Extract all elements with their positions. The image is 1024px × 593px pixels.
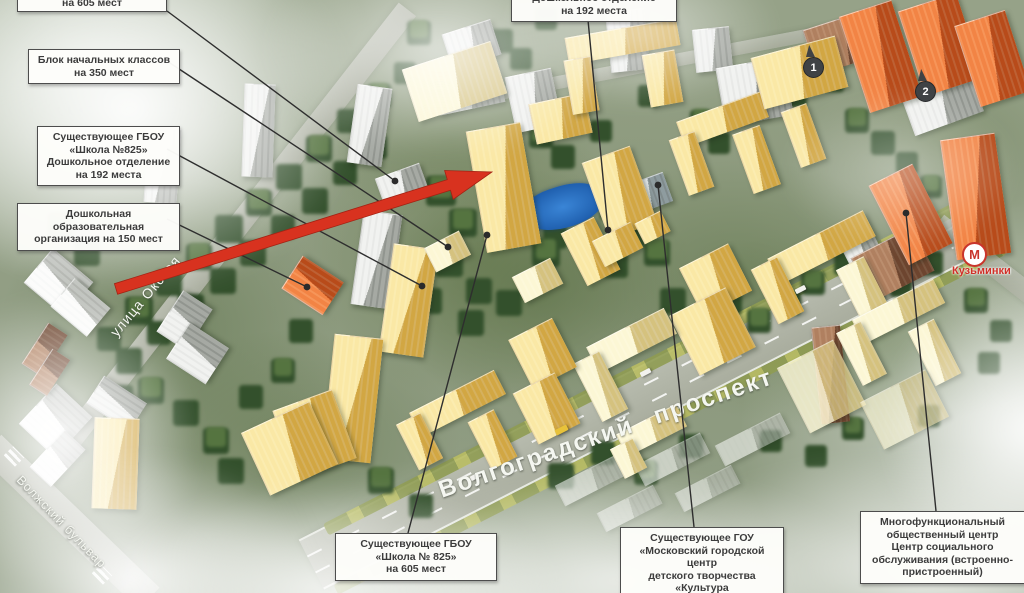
callout-line: «Школа № 825» xyxy=(341,551,491,564)
callout-line: «Московский городской центр xyxy=(626,545,778,570)
leader-dot xyxy=(304,284,311,291)
leader-dot xyxy=(605,227,612,234)
callout-line: Блок начальных классов xyxy=(34,54,174,67)
leader-line xyxy=(588,20,608,230)
leader-line xyxy=(658,185,694,527)
leader-dot xyxy=(419,283,426,290)
callout-line: общественный центр xyxy=(866,529,1019,542)
callout-line: «Школа №825» xyxy=(43,144,174,157)
callout-line: на 192 места xyxy=(43,169,174,182)
callout-preschool-org-150: Дошкольная образовательная организация н… xyxy=(17,203,180,251)
callout-line: пристроенный) xyxy=(866,566,1019,579)
masterplan-aerial-view: улица Окская Волгоградский проспект Волж… xyxy=(0,0,1024,593)
callout-multifunction-center: Многофункциональный общественный центр Ц… xyxy=(860,511,1024,584)
callout-school-605-partial: на 605 мест xyxy=(17,0,167,12)
leader-dots xyxy=(304,178,910,291)
callout-school825-605: Существующее ГБОУ «Школа № 825» на 605 м… xyxy=(335,533,497,581)
callout-line: на 605 мест xyxy=(341,563,491,576)
callout-primary-classes-block: Блок начальных классов на 350 мест xyxy=(28,49,180,84)
metro-station-label: Кузьминки xyxy=(952,265,1011,277)
callout-gou-culture-center: Существующее ГОУ «Московский городской ц… xyxy=(620,527,784,593)
callout-line: на 605 мест xyxy=(23,0,161,9)
callout-line: Существующее ГБОУ xyxy=(43,131,174,144)
callout-preschool-192: Дошкольное отделение на 192 места xyxy=(511,0,677,22)
annotation-overlay xyxy=(0,0,1024,593)
leader-dot xyxy=(392,178,399,185)
callout-line: Центр социального xyxy=(866,541,1019,554)
leader-line xyxy=(167,61,448,247)
leader-line xyxy=(408,235,487,533)
leader-line xyxy=(167,11,395,181)
callout-school825-preschool: Существующее ГБОУ «Школа №825» Дошкольно… xyxy=(37,126,180,186)
callout-line: Существующее ГБОУ xyxy=(341,538,491,551)
callout-line: на 350 мест xyxy=(34,67,174,80)
callout-line: Существующее ГОУ xyxy=(626,532,778,545)
callout-line: обслуживания (встроенно- xyxy=(866,554,1019,567)
metro-icon: М xyxy=(962,242,987,267)
callout-line: детского творчества «Культура xyxy=(626,570,778,593)
callout-line: Дошкольная образовательная xyxy=(23,208,174,233)
leader-dot xyxy=(445,244,452,251)
callout-line: Многофункциональный xyxy=(866,516,1019,529)
leader-lines xyxy=(167,11,936,533)
callout-line: Дошкольное отделение xyxy=(43,156,174,169)
callout-line: организация на 150 мест xyxy=(23,233,174,246)
leader-dot xyxy=(484,232,491,239)
callout-line: на 192 места xyxy=(517,5,671,18)
leader-dot xyxy=(655,182,662,189)
leader-line xyxy=(906,213,936,511)
leader-dot xyxy=(903,210,910,217)
map-pin-1: 1 xyxy=(803,57,824,78)
map-pin-2: 2 xyxy=(915,81,936,102)
callout-line: Дошкольное отделение xyxy=(517,0,671,5)
